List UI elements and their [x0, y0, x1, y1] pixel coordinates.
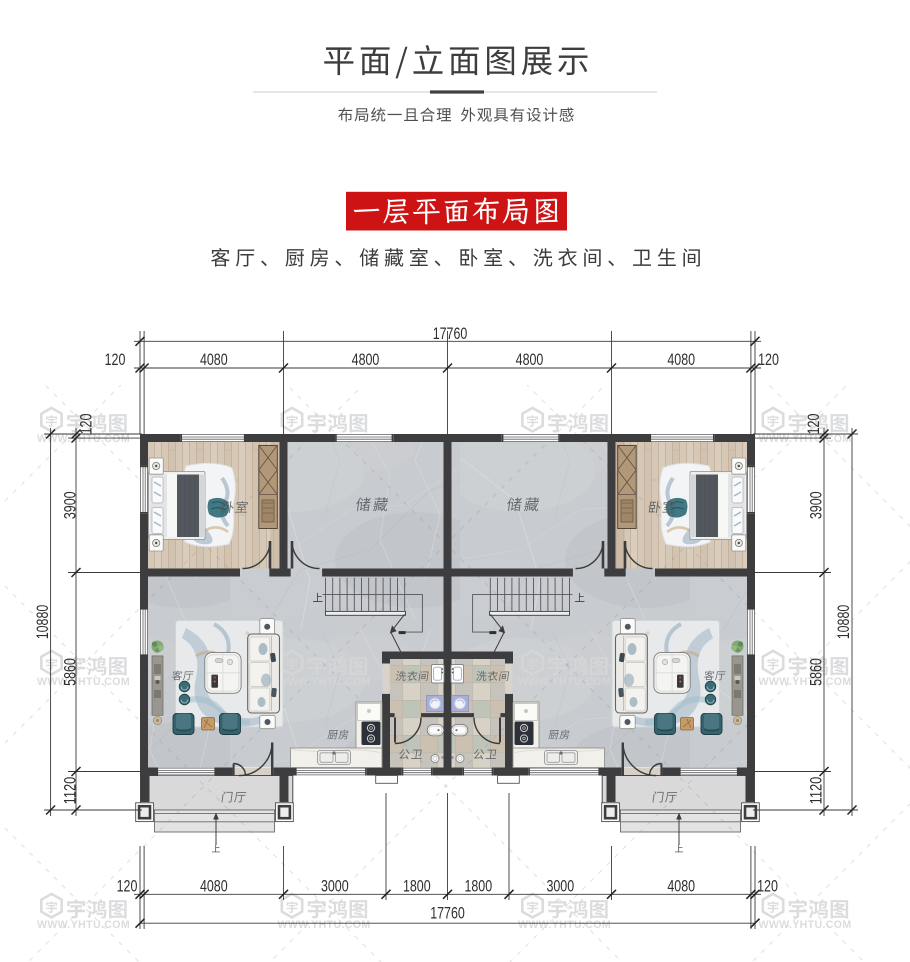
svg-text:3900: 3900	[62, 491, 80, 519]
svg-text:4080: 4080	[667, 877, 695, 895]
svg-text:120: 120	[105, 351, 126, 369]
svg-text:120: 120	[78, 414, 96, 435]
svg-text:3900: 3900	[808, 491, 826, 519]
svg-text:10880: 10880	[835, 605, 853, 640]
svg-text:3000: 3000	[321, 877, 349, 895]
svg-text:120: 120	[117, 877, 138, 895]
svg-text:4800: 4800	[352, 351, 380, 369]
svg-text:5860: 5860	[62, 658, 80, 686]
svg-text:5860: 5860	[808, 658, 826, 686]
svg-text:1120: 1120	[62, 777, 80, 805]
svg-text:4800: 4800	[516, 351, 544, 369]
svg-text:17760: 17760	[430, 905, 465, 923]
svg-text:1120: 1120	[808, 777, 826, 805]
svg-text:4080: 4080	[200, 351, 228, 369]
svg-text:120: 120	[758, 351, 779, 369]
svg-text:4080: 4080	[200, 877, 228, 895]
svg-text:1800: 1800	[464, 877, 492, 895]
svg-text:1800: 1800	[403, 877, 431, 895]
svg-text:3000: 3000	[546, 877, 574, 895]
svg-text:120: 120	[805, 414, 823, 435]
svg-text:120: 120	[757, 877, 778, 895]
svg-text:17760: 17760	[433, 325, 468, 343]
svg-text:4080: 4080	[667, 351, 695, 369]
svg-text:10880: 10880	[34, 605, 52, 640]
